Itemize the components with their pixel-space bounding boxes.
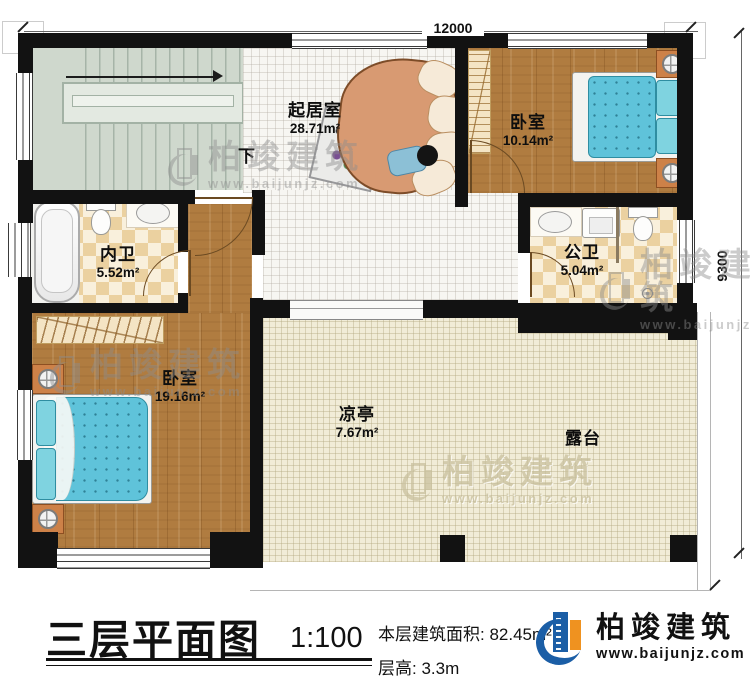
toilet-bowl bbox=[633, 216, 653, 241]
wall-bath-public-left bbox=[518, 193, 530, 253]
floor-area-line: 本层建筑面积: 82.45m² bbox=[378, 620, 552, 645]
room-area: 7.67m² bbox=[336, 425, 379, 440]
sink bbox=[136, 202, 170, 224]
room-name: 公卫 bbox=[561, 238, 604, 263]
watermark-name: 柏竣建筑 bbox=[442, 455, 598, 488]
floor-area-label: 本层建筑面积: bbox=[378, 625, 485, 644]
wall-terrace-top bbox=[423, 300, 518, 318]
bathtub bbox=[34, 201, 80, 303]
company-logo: 柏竣建筑 www.baijunjz.com bbox=[536, 612, 745, 664]
sliding-door bbox=[290, 300, 423, 320]
bed-pillow bbox=[36, 400, 56, 446]
watermark: 柏竣建筑 www.baijunjz.com bbox=[402, 455, 598, 506]
bed-mattress bbox=[588, 76, 656, 158]
room-name: 内卫 bbox=[97, 240, 140, 265]
stair-rail bbox=[62, 82, 244, 124]
watermark-url: www.baijunjz.com bbox=[208, 176, 364, 191]
room-area: 5.52m² bbox=[97, 265, 140, 280]
dimension-tick bbox=[709, 579, 720, 590]
nightstand-knob bbox=[38, 509, 58, 529]
sink bbox=[538, 211, 572, 233]
wall-bedroom-top-left bbox=[455, 33, 468, 207]
window bbox=[17, 390, 33, 460]
wall-bedroom-top-bottom bbox=[523, 193, 693, 207]
watermark-name: 柏竣建筑 bbox=[640, 248, 750, 314]
dimension-top-value: 12000 bbox=[422, 20, 484, 36]
wall-vestibule bbox=[252, 190, 265, 255]
watermark-url: www.baijunjz.com bbox=[640, 317, 750, 332]
washing-machine-lid bbox=[589, 217, 613, 234]
watermark-logo-icon bbox=[402, 461, 434, 501]
watermark-logo-icon bbox=[50, 354, 82, 394]
wall-terrace-top bbox=[263, 300, 290, 318]
watermark-text: 柏竣建筑 www.baijunjz.com bbox=[90, 348, 246, 399]
terrace-edge-right bbox=[697, 312, 711, 590]
wall-left bbox=[18, 277, 32, 390]
stair-rail-inner bbox=[72, 95, 234, 107]
room-area: 5.04m² bbox=[561, 263, 604, 278]
wardrobe bbox=[36, 316, 164, 344]
watermark: 柏竣建筑 www.baijunjz.com bbox=[600, 248, 750, 332]
terrace-column bbox=[670, 535, 697, 562]
washing-machine bbox=[582, 208, 620, 238]
wardrobe bbox=[468, 50, 491, 154]
floor-height-line: 层高: 3.3m bbox=[378, 654, 459, 679]
window bbox=[292, 33, 427, 49]
stair-arrow-icon bbox=[213, 70, 223, 82]
room-label-bedroom-top: 卧室 10.14m² bbox=[503, 108, 553, 148]
bathtub-basin bbox=[41, 209, 73, 293]
floor-height-label: 层高: bbox=[378, 659, 417, 678]
wall-left bbox=[18, 33, 33, 73]
title-rule-thin bbox=[46, 665, 372, 666]
room-name: 凉亭 bbox=[336, 400, 379, 425]
room-label-pavilion: 凉亭 7.67m² bbox=[336, 400, 379, 440]
room-area: 28.71m² bbox=[288, 121, 342, 136]
dimension-tick bbox=[733, 27, 744, 38]
watermark-url: www.baijunjz.com bbox=[442, 491, 598, 506]
terrace-edge-bottom bbox=[250, 562, 711, 591]
watermark-text: 柏竣建筑 www.baijunjz.com bbox=[640, 248, 750, 332]
company-logo-icon bbox=[536, 612, 588, 664]
watermark-name: 柏竣建筑 bbox=[90, 348, 246, 381]
wall-corner bbox=[18, 532, 58, 568]
toilet-bowl bbox=[91, 209, 111, 235]
window bbox=[57, 548, 210, 569]
watermark: 柏竣建筑 www.baijunjz.com bbox=[50, 348, 246, 399]
terrace-floor bbox=[263, 318, 697, 562]
company-logo-text: 柏竣建筑 www.baijunjz.com bbox=[596, 614, 745, 662]
floor-plan-page: 起居室 28.71m² 卧室 10.14m² 内卫 5.52m² 公卫 5.04… bbox=[0, 0, 750, 681]
hallway-floor bbox=[263, 190, 518, 300]
window bbox=[16, 73, 33, 160]
room-label-bath-public: 公卫 5.04m² bbox=[561, 238, 604, 278]
wall-bath-inner bbox=[178, 204, 188, 252]
stair-direction-line bbox=[66, 76, 214, 78]
person-head bbox=[417, 145, 438, 166]
room-label-living: 起居室 28.71m² bbox=[288, 96, 342, 136]
title-rule bbox=[46, 658, 372, 661]
watermark-name: 柏竣建筑 bbox=[208, 140, 364, 173]
floor-height-value: 3.3m bbox=[421, 659, 459, 678]
wall-right bbox=[677, 33, 693, 220]
watermark: 柏竣建筑 www.baijunjz.com bbox=[168, 140, 364, 191]
page-title: 三层平面图 bbox=[46, 606, 261, 666]
window bbox=[508, 33, 647, 49]
dimension-line-top bbox=[24, 31, 698, 32]
watermark-text: 柏竣建筑 www.baijunjz.com bbox=[442, 455, 598, 506]
room-name: 卧室 bbox=[503, 108, 553, 133]
watermark-logo-icon bbox=[600, 270, 632, 310]
room-label-terrace: 露台 bbox=[565, 424, 601, 449]
scale-label: 1:100 bbox=[290, 622, 363, 655]
nightstand bbox=[32, 504, 64, 534]
terrace-column bbox=[440, 535, 465, 562]
window bbox=[8, 223, 31, 277]
dimension-tick bbox=[733, 547, 744, 558]
room-name: 起居室 bbox=[288, 96, 342, 121]
wall-bedroom-top-bottom bbox=[455, 193, 468, 207]
room-label-bath-inner: 内卫 5.52m² bbox=[97, 240, 140, 280]
room-area: 10.14m² bbox=[503, 133, 553, 148]
wall-bedroom-left bbox=[250, 298, 263, 548]
room-name: 露台 bbox=[565, 424, 601, 449]
watermark-logo-icon bbox=[168, 146, 200, 186]
watermark-text: 柏竣建筑 www.baijunjz.com bbox=[208, 140, 364, 191]
company-url: www.baijunjz.com bbox=[596, 646, 745, 662]
company-name: 柏竣建筑 bbox=[596, 614, 745, 643]
watermark-url: www.baijunjz.com bbox=[90, 384, 246, 399]
wall-bath-inner-bottom bbox=[18, 303, 188, 313]
wall-mid bbox=[18, 190, 195, 204]
bed-pillow bbox=[36, 448, 56, 500]
